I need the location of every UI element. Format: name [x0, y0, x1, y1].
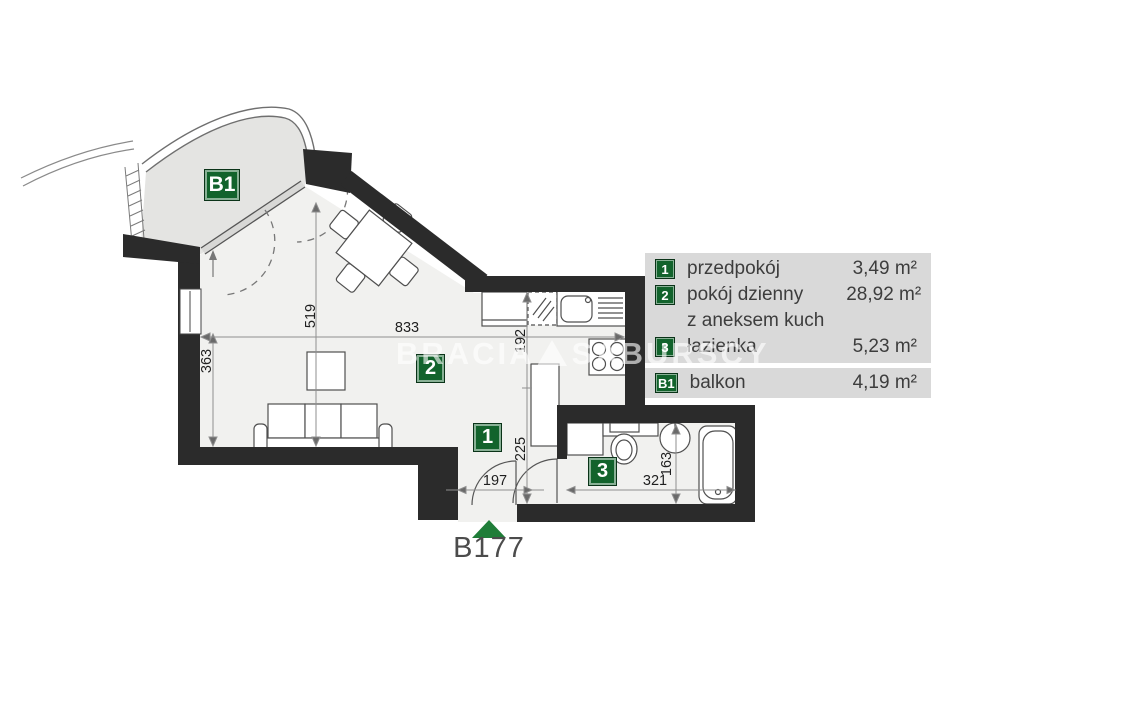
watermark-text-right: SABURSCY — [572, 336, 770, 372]
legend-row-hall: 1 przedpokój 3,49 m² — [645, 256, 931, 282]
dim-163: 163 — [659, 452, 675, 476]
legend-badge-1: 1 — [655, 259, 675, 279]
floor-plan-page: 833 519 363 192 225 197 321 163 B1 2 1 3… — [0, 0, 1135, 711]
unit-label: B177 — [404, 532, 574, 565]
legend-badge-2: 2 — [655, 285, 675, 305]
legend-room-name: pokój dzienny — [675, 284, 803, 306]
wardrobe — [531, 364, 559, 446]
legend-room-name-line2: z aneksem kuch — [675, 310, 931, 332]
legend-room-area: 3,49 m² — [799, 258, 931, 280]
washing-machine — [567, 423, 603, 455]
legend-room-area: 4,19 m² — [799, 372, 931, 394]
legend-room-area: 5,23 m² — [799, 336, 931, 358]
legend-row-living: 2 pokój dzienny 28,92 m² — [645, 282, 931, 308]
neighbor-balcony-curve — [21, 141, 134, 186]
window — [180, 289, 201, 334]
watermark: BRACIA SABURSCY — [396, 336, 770, 372]
watermark-text-left: BRACIA — [396, 336, 535, 372]
legend-badge-spacer — [655, 311, 675, 331]
room-badge-hall: 1 — [473, 423, 502, 452]
bathtub — [699, 426, 737, 504]
legend-row-living-cont: z aneksem kuch — [645, 308, 931, 334]
dim-363: 363 — [199, 349, 215, 373]
legend-room-name: przedpokój — [675, 258, 799, 280]
kitchen-counter — [482, 292, 557, 326]
legend-row-balcony: B1 balkon 4,19 m² — [645, 370, 931, 396]
legend-panel: 1 przedpokój 3,49 m² 2 pokój dzienny 28,… — [645, 253, 931, 398]
dim-833: 833 — [395, 320, 419, 336]
dim-197: 197 — [483, 473, 507, 489]
balcony-side-railing-hatch — [125, 163, 145, 243]
dim-519: 519 — [303, 304, 319, 328]
watermark-triangle-logo-icon — [537, 340, 567, 366]
kitchen-sink — [557, 291, 627, 326]
room-badge-bath: 3 — [588, 457, 617, 486]
dim-225: 225 — [513, 437, 529, 461]
legend-room-name: balkon — [678, 372, 799, 394]
legend-balcony-box: B1 balkon 4,19 m² — [645, 368, 931, 398]
coffee-table — [307, 352, 345, 390]
room-badge-balcony: B1 — [204, 169, 240, 201]
legend-badge-b1: B1 — [655, 373, 678, 393]
legend-room-area: 28,92 m² — [803, 284, 935, 306]
